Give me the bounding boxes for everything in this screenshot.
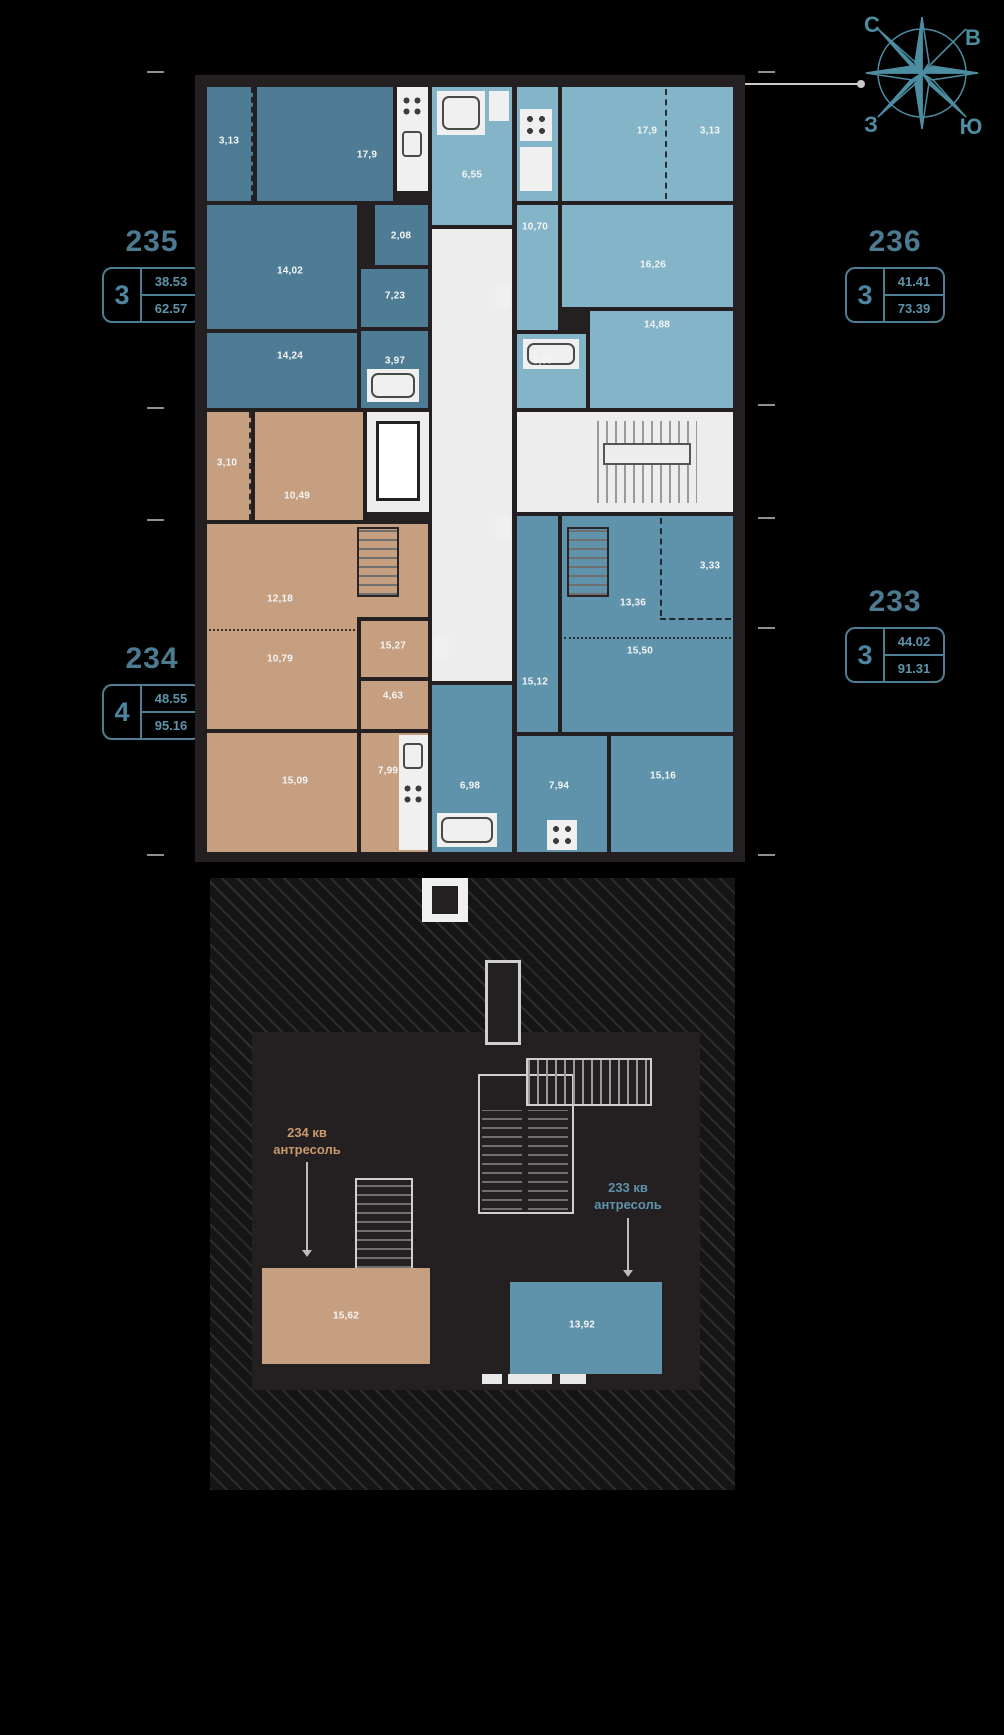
area-label: 15,62 <box>333 1311 359 1322</box>
apartment-card-236[interactable]: 236 3 41.41 73.39 <box>845 225 945 323</box>
apartment-number: 236 <box>845 225 945 259</box>
bathtub-a235 <box>367 369 419 402</box>
room-a236-bedroom1 <box>562 205 733 307</box>
stair-flight-left <box>482 1110 522 1210</box>
room-a233-bedroom <box>611 736 733 852</box>
area-label: 10,49 <box>284 491 310 502</box>
apartment-card-233[interactable]: 233 3 44.02 91.31 <box>845 585 945 683</box>
apartment-badge: 4 48.55 95.16 <box>102 684 202 740</box>
toilet-fixture <box>495 515 510 539</box>
living-area-value: 41.41 <box>885 269 943 296</box>
area-label: 7,23 <box>385 291 405 302</box>
loggia-divider-a233-h <box>660 618 731 620</box>
room-a235-bedroom1 <box>257 87 393 201</box>
room-a233-hall <box>517 516 558 732</box>
room-a234-bedroom2 <box>207 733 357 852</box>
threshold <box>482 1374 502 1384</box>
dimension-tick <box>758 404 775 406</box>
area-label: 3,13 <box>219 136 239 147</box>
area-label: 10,79 <box>267 654 293 665</box>
arrowhead-234 <box>302 1250 312 1257</box>
apartment-number: 234 <box>102 642 202 676</box>
area-label: 7,94 <box>549 781 569 792</box>
stair-flight-top <box>526 1058 652 1106</box>
area-label: 15,09 <box>282 776 308 787</box>
compass-leader-line <box>745 83 860 85</box>
rooms-count: 3 <box>104 269 142 321</box>
stair-flight-right <box>528 1110 568 1210</box>
dimension-tick <box>758 627 775 629</box>
loggia-divider-a236 <box>665 89 667 199</box>
room-a234-bedroom1 <box>255 412 363 520</box>
area-label: 15,12 <box>522 677 548 688</box>
mezzanine-caption-234: 234 кв антресоль <box>273 1124 341 1158</box>
arrowhead-233 <box>623 1270 633 1277</box>
area-label: 13,92 <box>569 1320 595 1331</box>
area-label: 3,13 <box>700 126 720 137</box>
rooms-count: 3 <box>847 269 885 321</box>
area-label: 14,24 <box>277 351 303 362</box>
floor-plan-page: С В З Ю 235 3 38.53 62.57 236 3 41.41 73… <box>0 0 1004 1735</box>
compass-north-label: С <box>864 12 880 38</box>
sink-top <box>489 91 509 121</box>
compass-south-label: Ю <box>960 114 983 140</box>
toilet-fixture <box>495 285 510 309</box>
area-label: 6,55 <box>462 170 482 181</box>
area-label: 17,9 <box>637 126 657 137</box>
dimension-tick <box>147 407 164 409</box>
main-floor-plan: 3,13 17,9 6,55 17,9 3,13 2,08 10,70 16,2… <box>195 75 745 862</box>
kitchen-fixtures-a234 <box>399 735 428 850</box>
stairs-to-mezzanine-a234 <box>357 527 399 597</box>
apartment-number: 233 <box>845 585 945 619</box>
arrow-to-room-234 <box>306 1162 308 1250</box>
compass-west-label: З <box>864 112 878 138</box>
dimension-tick <box>758 517 775 519</box>
apartment-card-234[interactable]: 234 4 48.55 95.16 <box>102 642 202 740</box>
bathtub-a233 <box>437 813 497 847</box>
room-a235-living <box>207 333 357 408</box>
rooms-count: 4 <box>104 686 142 738</box>
dimension-tick <box>147 519 164 521</box>
area-label: 6,98 <box>460 781 480 792</box>
apartment-badge: 3 38.53 62.57 <box>102 267 202 323</box>
dimension-tick <box>147 854 164 856</box>
stair-flight-234 <box>355 1178 413 1270</box>
compass-leader-dot <box>857 80 865 88</box>
threshold <box>508 1374 552 1384</box>
stove-a236 <box>520 109 552 141</box>
apartment-card-235[interactable]: 235 3 38.53 62.57 <box>102 225 202 323</box>
mezzanine-plan: 15,62 13,92 234 кв антресоль 233 кв антр… <box>210 878 735 1490</box>
stove-a233 <box>547 820 577 850</box>
dimension-tick <box>758 71 775 73</box>
area-label: 14,88 <box>644 320 670 331</box>
area-label: 3,97 <box>533 356 553 367</box>
area-label: 14,02 <box>277 266 303 277</box>
threshold <box>560 1374 586 1384</box>
area-label: 15,27 <box>380 641 406 652</box>
dimension-tick <box>147 71 164 73</box>
area-label: 2,08 <box>391 231 411 242</box>
living-area-value: 44.02 <box>885 629 943 656</box>
area-label: 17,9 <box>357 150 377 161</box>
zone-divider-a233 <box>564 637 731 639</box>
staircase-handrail <box>603 443 691 465</box>
compass-east-label: В <box>965 25 981 51</box>
shaft-column <box>485 960 521 1045</box>
sink-fixture <box>434 635 449 659</box>
total-area-value: 95.16 <box>142 713 200 738</box>
stairs-to-mezzanine-a233 <box>567 527 609 597</box>
apartment-badge: 3 44.02 91.31 <box>845 627 945 683</box>
living-area-value: 38.53 <box>142 269 200 296</box>
area-label: 10,70 <box>522 222 548 233</box>
area-label: 15,50 <box>627 646 653 657</box>
mezzanine-caption-233: 233 кв антресоль <box>594 1179 662 1213</box>
area-label: 16,26 <box>640 260 666 271</box>
area-label: 7,99 <box>378 766 398 777</box>
room-a234-bathroom <box>361 681 428 729</box>
elevator-car-mezz <box>432 886 458 914</box>
total-area-value: 62.57 <box>142 296 200 321</box>
dimension-tick <box>758 854 775 856</box>
arrow-to-room-233 <box>627 1218 629 1270</box>
apartment-badge: 3 41.41 73.39 <box>845 267 945 323</box>
kitchen-fixtures-a235 <box>397 87 428 191</box>
elevator-car <box>376 421 420 501</box>
living-area-value: 48.55 <box>142 686 200 713</box>
total-area-value: 91.31 <box>885 656 943 681</box>
loggia-divider-a233-v <box>660 518 662 616</box>
fridge-a236 <box>520 147 552 191</box>
bathtub-shared-top <box>437 91 485 135</box>
room-a234-living-block <box>207 524 357 729</box>
area-label: 4,63 <box>383 691 403 702</box>
area-label: 3,33 <box>700 561 720 572</box>
area-label: 3,10 <box>217 458 237 469</box>
zone-divider-a234 <box>209 629 355 631</box>
area-label: 15,16 <box>650 771 676 782</box>
room-a236-living <box>562 87 733 201</box>
total-area-value: 73.39 <box>885 296 943 321</box>
rooms-count: 3 <box>847 629 885 681</box>
apartment-number: 235 <box>102 225 202 259</box>
area-label: 13,36 <box>620 598 646 609</box>
area-label: 3,97 <box>385 356 405 367</box>
area-label: 12,18 <box>267 594 293 605</box>
